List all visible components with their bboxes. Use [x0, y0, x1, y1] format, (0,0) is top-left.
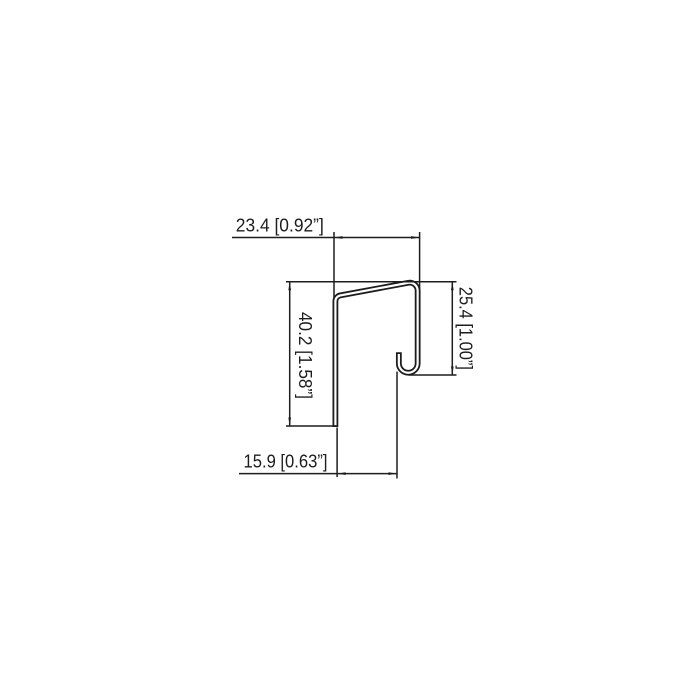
- svg-text:40.2 [1.58”]: 40.2 [1.58”]: [295, 312, 315, 399]
- svg-text:15.9 [0.63”]: 15.9 [0.63”]: [244, 452, 328, 472]
- svg-text:25.4 [1.00”]: 25.4 [1.00”]: [456, 287, 476, 370]
- svg-text:23.4 [0.92”]: 23.4 [0.92”]: [236, 215, 324, 235]
